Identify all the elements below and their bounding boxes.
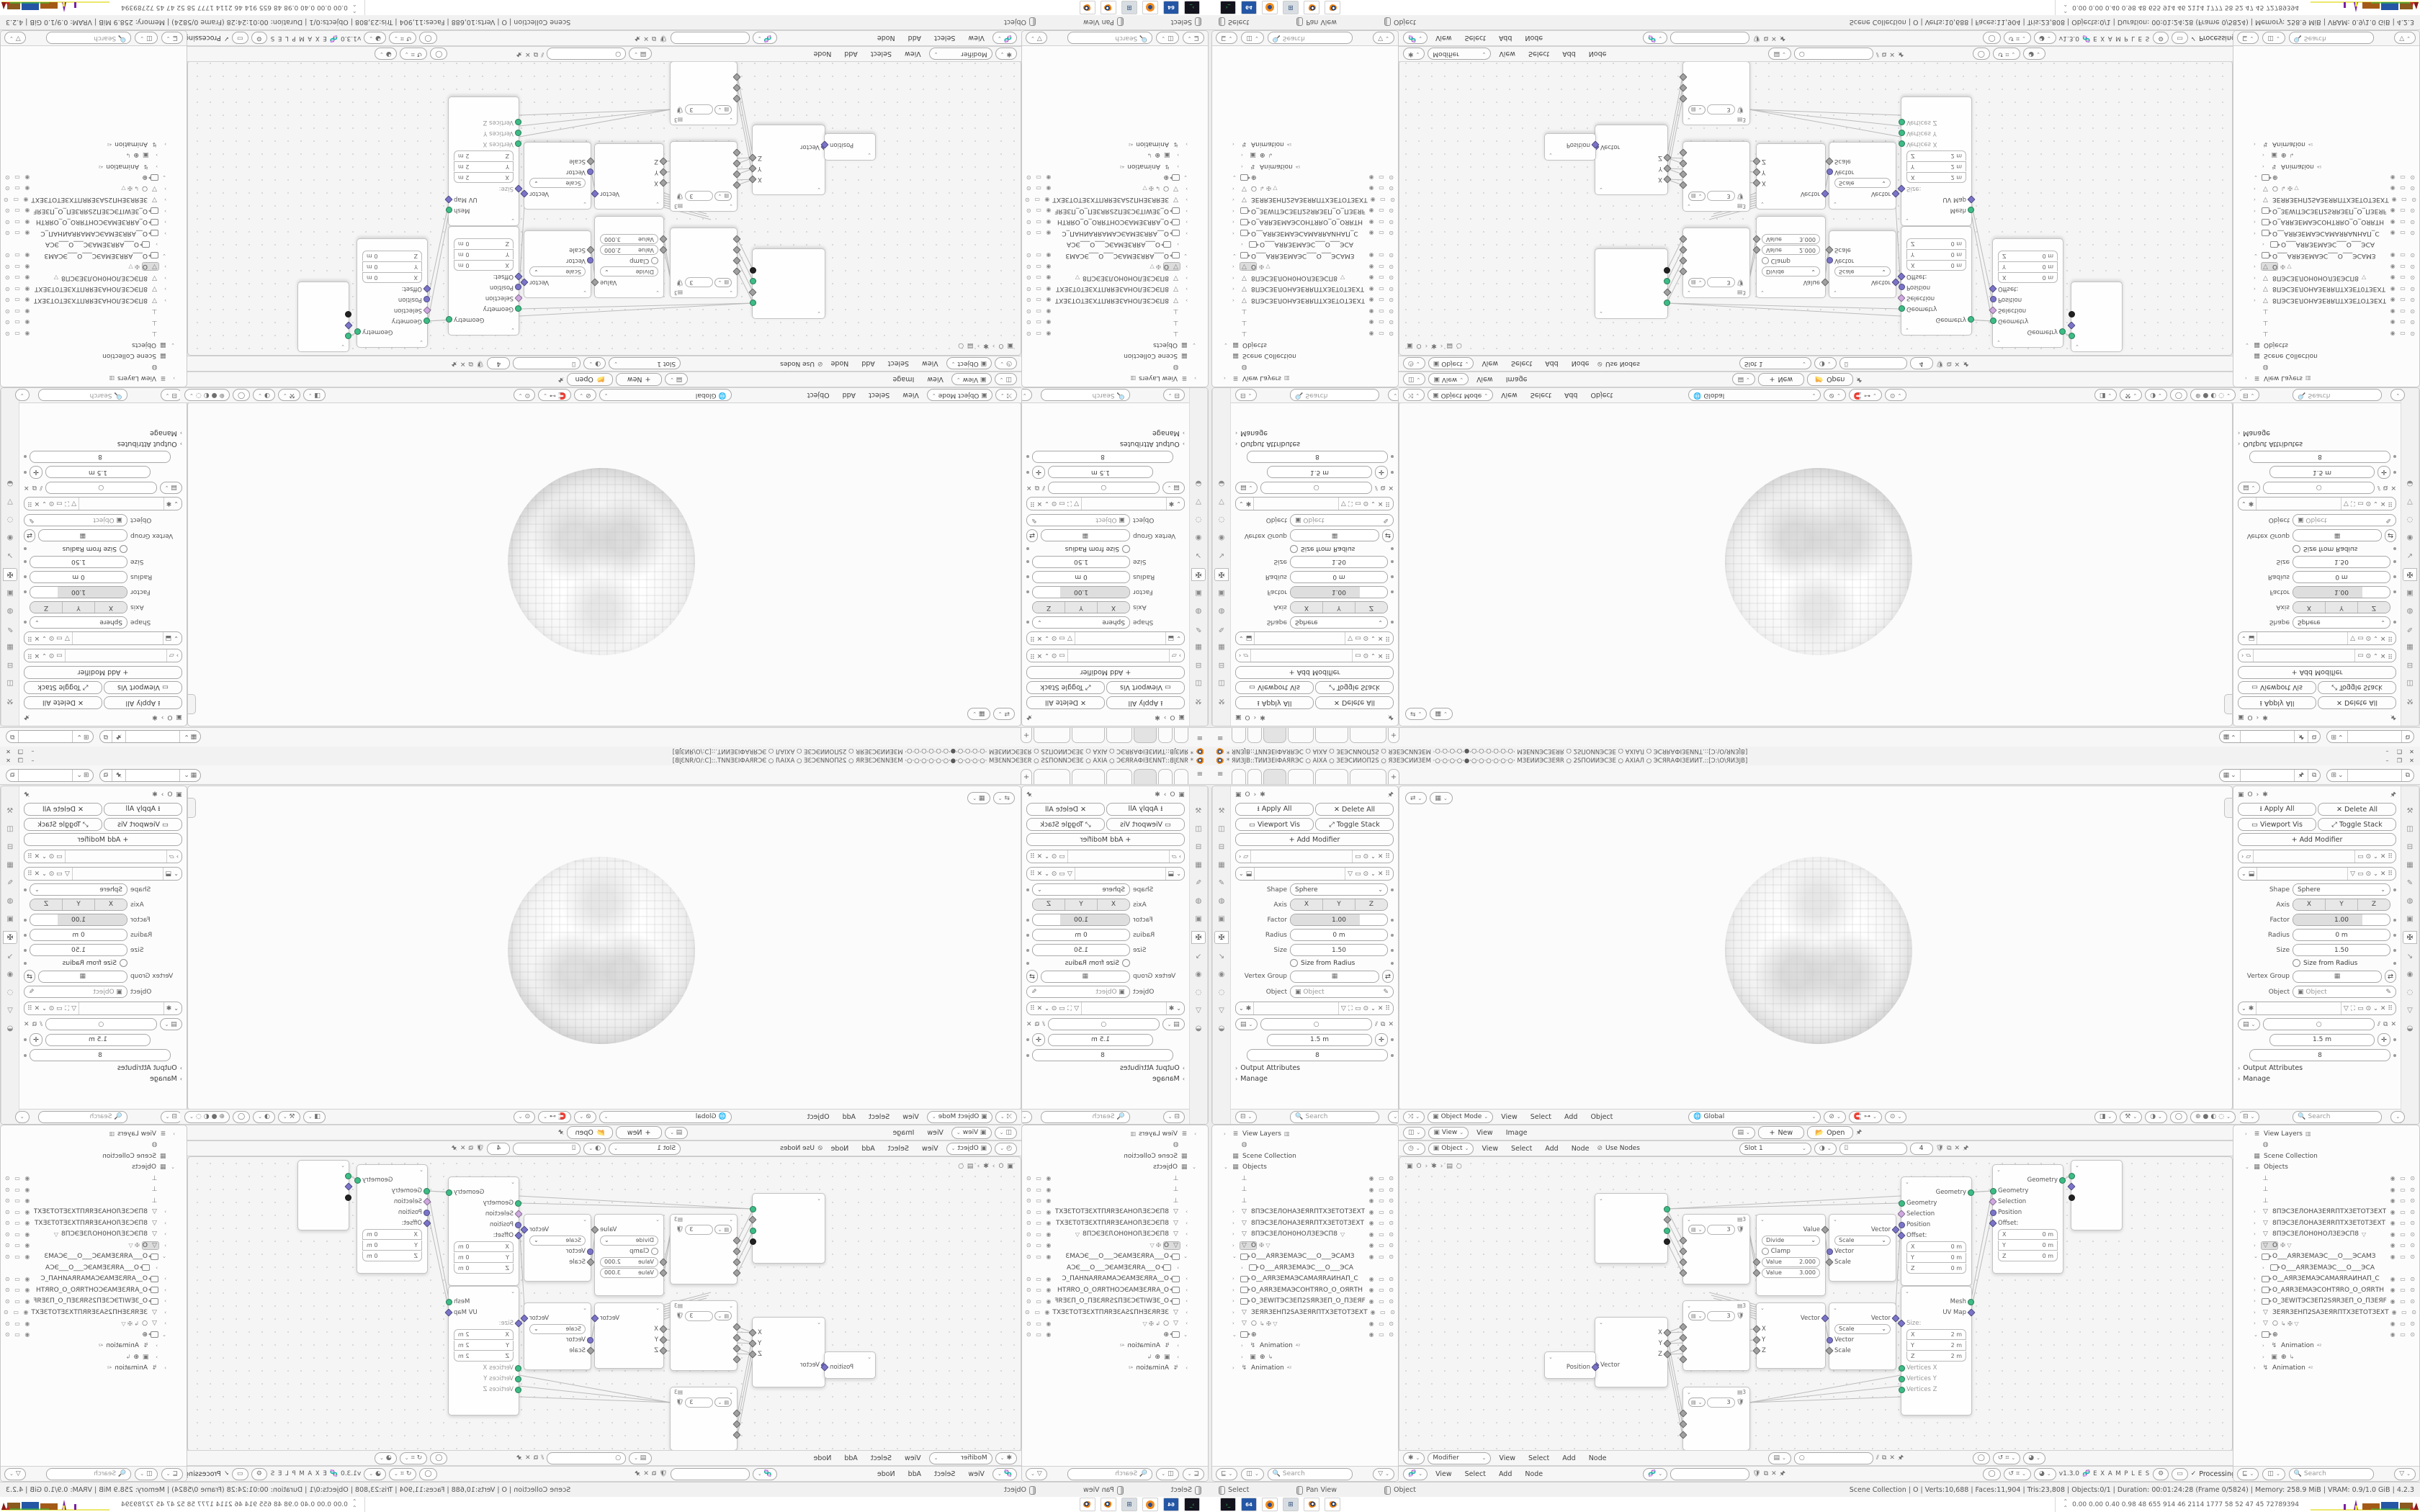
visibility-toggles[interactable]: ◉ ▭ ⊙ (1023, 174, 1051, 181)
modifier-name-field[interactable] (72, 868, 163, 880)
overlays-dropdown[interactable]: ◕⌄ (2023, 48, 2045, 60)
properties-tab-9[interactable]: ◉ (1192, 968, 1205, 980)
properties-tab-3[interactable]: ▦ (1215, 642, 1228, 653)
transform-orientation-selector[interactable]: 🌐 Global⌄ (1688, 1111, 1821, 1123)
pin-icon[interactable]: 🖈 (558, 1127, 564, 1138)
modifier-name-field[interactable] (1075, 632, 1166, 644)
blender-app-icon-2[interactable] (1080, 1, 1095, 14)
properties-tab-3[interactable]: ▦ (4, 859, 17, 870)
visibility-toggles[interactable]: ◉ ▭ ⊙ (2390, 1287, 2418, 1293)
outliner-item[interactable]: ⊥◉ ▭ ⊙ (1215, 317, 1397, 328)
add-workspace-button[interactable]: + (1021, 728, 1032, 743)
factor-slider[interactable]: 1.00 (1032, 586, 1130, 598)
image-menu-view[interactable]: View (1476, 376, 1493, 384)
outliner-item-Objects[interactable]: ⌄▦Objects (1023, 339, 1205, 351)
properties-tab-5[interactable]: ◍ (1215, 895, 1228, 906)
size-from-radius-radio[interactable] (1122, 959, 1130, 967)
node-group-output[interactable]: ⌄ (2071, 1160, 2123, 1230)
shape-dropdown[interactable]: Sphere⌄ (1032, 883, 1130, 896)
visibility-toggles[interactable]: ◉ ▭ ⊙ (2, 174, 30, 181)
copy-icon[interactable]: ⧉ (1381, 485, 1385, 492)
properties-tab-9[interactable]: ◉ (1215, 968, 1228, 980)
output-attributes-section[interactable]: Output Attributes (117, 1064, 177, 1072)
footer-menu-add[interactable]: Add (1562, 50, 1575, 58)
image-browse-icon[interactable]: ▤⌄ (1732, 374, 1754, 386)
view-layer-selector[interactable]: ⊞⌄ ⧉ (6, 769, 94, 782)
snap-magnet-toggle[interactable]: 🧲⊶⌄ (1849, 1111, 1882, 1123)
node-menu-view[interactable]: View (922, 360, 938, 368)
sidebar-toggle-tab[interactable] (188, 798, 196, 818)
node-editor-canvas[interactable]: ▣O ›✱›▤○ ⌄⌄XYZVector⌄Position⌄▤3▤⌄3🛡⌄▤3▤… (187, 60, 1021, 356)
node-id-group-1[interactable]: ⌄▤3▤⌄3🛡 (670, 228, 738, 298)
object-field[interactable]: ▣ Object✎ (1026, 986, 1130, 998)
visibility-toggles[interactable]: ◉ ▭ ⊙ (2390, 1298, 2418, 1305)
image-editor-type-icon[interactable]: ◫⌄ (995, 1127, 1017, 1139)
geometry-nodes-modifier-header[interactable]: ⌄✱▽⛶▭⊙⌄✕⠿ (1026, 497, 1185, 510)
visibility-toggles[interactable]: ◉ ▭ ⊙ (1369, 174, 1397, 181)
properties-tab-4[interactable]: ✎ (4, 877, 17, 888)
object-field[interactable]: ▣ Object✎ (24, 986, 127, 998)
file-manager-app-icon[interactable]: 64 (1163, 1498, 1179, 1511)
modifier-header-expanded[interactable]: ⌄⬓▽▭⊙⌄✕⠿ (24, 631, 182, 645)
outliner-item-O_ЗЕWІТЭСЗЕП[interactable]: ›O_ЗЕWІТЭСЗЕП2ЅЯRЗЕП_O_ПЗЕЯF◉ ▭ ⊙ (2236, 1296, 2418, 1308)
gn-count-field[interactable]: 8 (30, 451, 171, 463)
close-x-icon[interactable]: ✕ (1026, 1021, 1032, 1028)
vertex-group-field[interactable]: ▦ (2293, 971, 2382, 983)
outliner-item-O[interactable]: ›▽O✠ ▽◉ ▭ ⊙ (2, 1240, 184, 1251)
node-position[interactable]: ⌄Position (824, 133, 876, 161)
outliner-item-⊕[interactable]: ⌄⊕◉ ▭ ⊙ (1215, 1329, 1397, 1341)
image-menu-image[interactable]: Image (893, 376, 915, 384)
outliner-item-O_АЯRЗЕМАЭСО[interactable]: ›O_АЯRЗЕМАЭСОНТЯRО_O_ОЯRТН◉ ▭ ⊙ (1215, 217, 1397, 228)
image-menu-view[interactable]: View (927, 1129, 944, 1137)
gn-menu-node[interactable]: Node (1525, 35, 1543, 42)
outliner-item-O[interactable]: ›▽O✠ ▽◉ ▭ ⊙ (2, 261, 184, 273)
modifier-name-field[interactable] (2253, 850, 2355, 863)
outliner-item[interactable]: ⊥◉ ▭ ⊙ (1023, 328, 1205, 340)
visibility-toggles[interactable]: ◉ ▭ ⊙ (1369, 219, 1397, 225)
visibility-toggles[interactable]: ◉ ▭ ⊙ (2390, 174, 2418, 181)
snap-grid-toggle[interactable]: ↺⌗⌄ (389, 1468, 417, 1480)
eyedropper-icon[interactable]: ✎ (1383, 517, 1389, 524)
workspace-tab-6[interactable] (1034, 769, 1070, 784)
graph-icon[interactable]: ⫽ (2378, 485, 2380, 492)
visibility-toggles[interactable]: ◉ ▭ ⊙ (2, 252, 30, 258)
shape-dropdown[interactable]: Sphere⌄ (2293, 883, 2390, 896)
render-slot-selector[interactable]: Slot 1⌄ (609, 358, 681, 370)
modifier-header-expanded[interactable]: ⌄⬓▽▭⊙⌄✕⠿ (1235, 867, 1394, 881)
outliner-item-8ПЭСЗЕЛОНАЗЕ[interactable]: ›▽8ПЭСЗЕЛОНАЗЕЯRПТХЗЕТ0ТЗЕХТ◉ ▭ ⊙ (2, 1218, 184, 1229)
snap-grid-toggle[interactable]: ↺⌗⌄ (2004, 32, 2032, 45)
properties-tab-5[interactable]: ◍ (4, 606, 17, 617)
workspace-tab-1[interactable] (1232, 769, 1246, 784)
snap-magnet-toggle[interactable]: 🧲⊶⌄ (538, 390, 571, 402)
properties-search-field[interactable]: 🔍 Search (1290, 1111, 1379, 1123)
outliner-item-Animation[interactable]: ›↯Animation⁴² (2236, 138, 2418, 150)
outliner-item-Animation[interactable]: ›↯Animation⁴² (1023, 1341, 1205, 1352)
shape-dropdown[interactable]: Sphere⌄ (30, 883, 127, 896)
factor-slider[interactable]: 1.00 (2293, 586, 2390, 598)
factor-slider[interactable]: 1.00 (1290, 914, 1388, 926)
properties-tab-3[interactable]: ▦ (1215, 859, 1228, 870)
visibility-toggles[interactable]: ◉ ▭ ⊙ (1023, 264, 1051, 270)
node-group-browse[interactable]: ▤⌄ (1235, 482, 1258, 494)
outliner-search-field[interactable]: 🔍 Search (46, 32, 131, 45)
visibility-toggles[interactable]: ◉ ▭ ⊙ (1369, 319, 1397, 325)
snap-toggle[interactable]: ⊘⌄ (1824, 390, 1845, 402)
outliner-item-Animation[interactable]: ›↯Animation⁴² (1215, 161, 1397, 172)
outliner-item[interactable]: ⊥◉ ▭ ⊙ (1215, 306, 1397, 318)
properties-tab-6[interactable]: ▣ (4, 588, 17, 599)
properties-tab-0[interactable]: ⚒ (1215, 805, 1228, 816)
geonodes-editor-icon[interactable]: 🧬⌄ (1403, 1468, 1428, 1480)
outliner-item-8ПЭСЗЕЛОНАЗЕ[interactable]: ›▽8ПЭСЗЕЛОНАЗЕЯRПТХЗЕТ0ТЗЕХТ◉ ▭ ⊙ (1215, 1218, 1397, 1229)
visibility-toggles[interactable]: ◉ ▭ ⊙ (1369, 185, 1397, 192)
addon-settings-button[interactable]: ⚙ (2153, 1468, 2169, 1480)
pin-icon[interactable]: 🖈 (558, 374, 564, 385)
properties-tab-1[interactable]: ◫ (2403, 823, 2416, 834)
visibility-toggles[interactable]: ◉ ▭ ⊙ (1023, 308, 1051, 315)
outliner-item-8ПЭСЗЕЛОНАЗЕ[interactable]: ›▽8ПЭСЗЕЛОНАЗЕЯRПТХЗЕТ0ТЗЕХТ◉ ▭ ⊙ (1023, 1218, 1205, 1229)
properties-tab-9[interactable]: ◉ (2403, 532, 2416, 544)
graph-icon[interactable]: ⫽ (40, 1021, 42, 1028)
outliner-item-View Layers[interactable]: ›≣View Layers▥ (2, 1128, 184, 1140)
visibility-toggles[interactable]: ◉ ▭ ⊙ (2390, 185, 2418, 192)
unlink-x-icon[interactable]: ✕ (460, 360, 466, 367)
minimize-button[interactable]: – (29, 757, 37, 764)
outliner-item[interactable]: ◍ (1023, 361, 1205, 373)
visibility-toggles[interactable]: ◉ ▭ ⊙ (1369, 1254, 1397, 1260)
radius-field[interactable]: 0 m (1032, 929, 1130, 941)
properties-search-field[interactable]: 🔍 Search (2293, 1111, 2382, 1123)
outliner-display-mode[interactable]: ◫⌄ (2262, 1468, 2285, 1480)
geometry-nodes-modifier-header[interactable]: ⌄✱▽⛶▭⊙⌄✕⠿ (1235, 497, 1394, 510)
node-vector-scale-1[interactable]: ⌄VectorScale⌄VectorScale (524, 1214, 591, 1282)
modifier-header-collapsed[interactable]: ›▱▭⊙⌄✕⠿ (24, 649, 182, 662)
node-position[interactable]: ⌄Position (1544, 133, 1596, 161)
node-combine-xyz[interactable]: ⌄VectorXYZ (1756, 1302, 1826, 1369)
pin-icon[interactable]: 🖈 (1856, 1127, 1862, 1138)
visibility-toggles[interactable]: ◉ ▭ ⊙ (1023, 1287, 1051, 1293)
properties-tab-12[interactable]: ◒ (1192, 1022, 1205, 1034)
viewport-menu-add[interactable]: Add (1564, 1113, 1577, 1121)
view-layer-selector[interactable]: ⊞⌄ ⧉ (6, 730, 94, 743)
use-nodes-checkbox[interactable]: ⊘ (817, 1145, 823, 1152)
viewport-menu-add[interactable]: Add (1564, 392, 1577, 400)
outliner-item[interactable]: ◍ (2, 1140, 184, 1151)
file-manager-app-icon[interactable]: 64 (1163, 1, 1179, 14)
node-object-info[interactable]: ⌄ (752, 1193, 825, 1264)
pin-icon[interactable]: 🖈 (1898, 48, 1904, 60)
visibility-toggles[interactable]: ◉ ▭ ⊙ (1, 1309, 28, 1315)
outliner-item-O___АЯRЗЕМАЭ[interactable]: ⌄O___АЯRЗЕМАЭС___O___ЭСАМЗ◉ ▭ ⊙ (1215, 250, 1397, 261)
properties-tab-2[interactable]: ⊟ (1192, 841, 1205, 852)
pin-icon[interactable]: 🖈 (2390, 711, 2396, 723)
calculator-app-icon[interactable]: ⊞ (1283, 1, 1299, 14)
outliner-item-○[interactable]: ›▽○↳ ✠ ▽◉ ▭ ⊙ (2, 183, 184, 194)
footer-menu-select[interactable]: Select (871, 50, 892, 58)
pin-icon[interactable]: 🖈 (516, 1452, 522, 1464)
blender-app-icon[interactable] (1304, 1, 1319, 14)
outliner-item-ЗЕЯRЗЕНП2ЅАЗ[interactable]: ›▽ЗЕЯRЗЕНП2ЅАЗЕЯRПТХЗЕТОТЗЕХТ◉ ▭ ⊙ (2236, 1307, 2418, 1318)
view-object-types-button[interactable]: ◨⌄ (303, 390, 326, 402)
outliner-search-field[interactable]: 🔍 Search (1067, 32, 1152, 45)
outliner-item-○[interactable]: ›▽○↳ ✠ ▽◉ ▭ ⊙ (2, 1318, 184, 1330)
factor-slider[interactable]: 1.00 (30, 914, 127, 926)
properties-tab-4[interactable]: ✎ (4, 624, 17, 635)
node-set-position-1[interactable]: ⌄GeometryGeometrySelectionPositionOffset… (448, 226, 519, 336)
visibility-toggles[interactable]: ◉ ▭ ⊙ (1023, 1298, 1051, 1305)
menu-hamburger-icon[interactable]: ≡ (1217, 734, 1223, 742)
modifier-name-field[interactable] (79, 1002, 164, 1014)
outliner-search-field[interactable]: 🔍 Search (1268, 32, 1353, 45)
visibility-toggles[interactable]: ◉ ▭ ⊙ (1369, 207, 1397, 214)
overlay-circle-toggle[interactable]: ◯ (1973, 1452, 1990, 1464)
modifier-name-field[interactable] (1253, 498, 1339, 510)
invert-vertex-group-button[interactable]: ⇄ (1026, 529, 1038, 542)
image-editor-type-icon[interactable]: ◫⌄ (1403, 1127, 1425, 1139)
node-id-group-1[interactable]: ⌄▤3▤⌄3🛡 (1682, 1214, 1750, 1284)
workspace-tab-1[interactable] (1232, 728, 1246, 743)
properties-tab-5[interactable]: ◍ (1192, 895, 1205, 906)
outliner-filter-button[interactable]: ▽⌄ (4, 32, 26, 45)
view-layer-selector[interactable]: ⊞⌄ ⧉ (2326, 730, 2414, 743)
outliner-item-8ПЭСЗЕЛОН0НО[interactable]: ›▽8ПЭСЗЕЛОН0НОЛЗЕЭСП8▽◉ ▭ ⊙ (1023, 1229, 1205, 1241)
viewport-sphere-object[interactable] (508, 468, 695, 655)
properties-tab-8[interactable]: ↘ (4, 550, 17, 562)
outliner-item-O___АЯRЗЕМАЭ[interactable]: ›O___АЯRЗЕМАЭС___O___ЭСА (2236, 239, 2418, 251)
properties-tab-3[interactable]: ▦ (2403, 859, 2416, 870)
outliner-item-O[interactable]: ›▽O✠ ▽◉ ▭ ⊙ (1023, 261, 1205, 273)
properties-tab-1[interactable]: ◫ (2403, 678, 2416, 689)
viewport-menu-add[interactable]: Add (843, 1113, 856, 1121)
node-vector-scale-2[interactable]: ⌄VectorScale⌄VectorScale (1829, 1302, 1896, 1370)
radius-field[interactable]: 0 m (1290, 571, 1388, 583)
properties-tab-2[interactable]: ⊟ (4, 841, 17, 852)
visibility-toggles[interactable]: ◉ ▭ ⊙ (1369, 1320, 1397, 1327)
vertex-group-field[interactable]: ▦ (38, 530, 127, 542)
visibility-toggles[interactable]: ◉ ▭ ⊙ (1023, 274, 1051, 281)
visibility-toggles[interactable]: ◉ ▭ ⊙ (2, 286, 30, 292)
image-name-field[interactable]: ⌼ (513, 1143, 581, 1155)
viewport-editor-type-icon[interactable]: ⤨⌄ (995, 1111, 1017, 1123)
add-modifier-button[interactable]: + Add Modifier (1026, 666, 1185, 679)
modifier-name-field[interactable] (1254, 632, 1345, 644)
visibility-toggles[interactable]: ◉ ▭ ⊙ (2, 330, 30, 337)
visibility-toggles[interactable]: ◉ ▭ ⊙ (2, 1254, 30, 1260)
visibility-toggles[interactable]: ◉ ▭ ⊙ (1023, 207, 1051, 214)
gn-menu-add[interactable]: Add (908, 35, 921, 42)
factor-slider[interactable]: 1.00 (1290, 586, 1388, 598)
outliner-item-Animation[interactable]: ›↯Animation⁴² (1215, 1363, 1397, 1374)
object-field[interactable]: ▣ Object✎ (2293, 514, 2396, 526)
node-menu-view[interactable]: View (1482, 360, 1498, 368)
outliner-item-8ПЭСЗЕЛОН0НО[interactable]: ›▽8ПЭСЗЕЛОН0НОЛЗЕЭСП8▽◉ ▭ ⊙ (2236, 272, 2418, 284)
outliner-item[interactable]: ⊥◉ ▭ ⊙ (2, 306, 184, 318)
node-position[interactable]: ⌄Position (1544, 1351, 1596, 1379)
image-editor-type-icon[interactable]: ◫⌄ (1403, 374, 1425, 386)
viewport-vis-button[interactable]: ▭ Viewport Vis (1106, 818, 1185, 831)
footer-menu-select[interactable]: Select (871, 1454, 892, 1462)
viewport-vis-button[interactable]: ▭ Viewport Vis (2238, 681, 2316, 694)
node-cube[interactable]: ⌄MeshUV MapSize:X2 mY2 mZ2 mVertices XVe… (1901, 1286, 1972, 1416)
invert-vertex-group-button[interactable]: ⇄ (24, 529, 35, 542)
outliner-filter-button[interactable]: ▽⌄ (4, 1468, 26, 1480)
copy-icon[interactable]: ⧉ (32, 485, 37, 492)
image-browse-icon[interactable]: ▤⌄ (1732, 1127, 1754, 1139)
visibility-toggles[interactable]: ◉ ▭ ⊙ (1369, 330, 1397, 337)
workspace-tab-2[interactable] (1247, 769, 1262, 784)
sidebar-toggle-tab[interactable] (2224, 798, 2232, 818)
outliner-editor-type-icon[interactable]: ⊑⌄ (1183, 1468, 1204, 1480)
properties-tab-2[interactable]: ⊟ (2403, 660, 2416, 671)
visibility-toggles[interactable]: ◉ ▭ ⊙ (2, 308, 30, 315)
outliner-item-O_АЯRЗЕМАЭСО[interactable]: ›O_АЯRЗЕМАЭСОНТЯRО_O_ОЯRТН◉ ▭ ⊙ (2, 1284, 184, 1296)
close-button[interactable]: ✕ (2408, 757, 2416, 764)
outliner-item[interactable]: ⊥◉ ▭ ⊙ (2, 1184, 184, 1196)
xray-toggle[interactable]: ◯ (233, 1111, 250, 1123)
properties-tab-3[interactable]: ▦ (4, 642, 17, 653)
apply-all-button[interactable]: ⭳ Apply All (1235, 696, 1314, 709)
visibility-toggles[interactable]: ◉ ▭ ⊙ (1023, 1242, 1051, 1248)
pin-icon[interactable]: 🖈 (24, 711, 30, 723)
node-set-position-2[interactable]: ⌄GeometryGeometrySelectionPositionOffset… (1992, 238, 2063, 348)
visibility-toggles[interactable]: ◉ ▭ ⊙ (2, 185, 30, 192)
gn-count-field[interactable]: 8 (2249, 451, 2390, 463)
vertex-group-field[interactable]: ▦ (1041, 971, 1130, 983)
outliner-item[interactable]: ◍ (2, 361, 184, 373)
outliner-item[interactable]: ⊥◉ ▭ ⊙ (2, 317, 184, 328)
snap-grid-toggle[interactable]: ↺⌗⌄ (1993, 1452, 2021, 1464)
graph-icon[interactable]: ⫽ (1042, 1021, 1045, 1028)
outliner-item-Objects[interactable]: ⌄▦Objects (2236, 339, 2418, 351)
outliner-search-field[interactable]: 🔍 Search (2289, 1468, 2374, 1480)
node-group-name-field[interactable]: ○ (1260, 482, 1372, 494)
size-from-radius-radio[interactable] (2293, 545, 2300, 553)
visibility-toggles[interactable]: ◉ ▭ ⊙ (2390, 1242, 2418, 1248)
workspace-tab-1[interactable] (1174, 728, 1188, 743)
copy-icon[interactable]: ⧉ (652, 35, 656, 42)
add-workspace-button[interactable]: + (1388, 728, 1399, 743)
properties-tab-1[interactable]: ◫ (4, 678, 17, 689)
image-menu-view[interactable]: View (927, 376, 944, 384)
properties-search-field[interactable]: 🔍 Search (1041, 390, 1130, 402)
workspace-tab-3[interactable] (1134, 728, 1157, 743)
workspace-tab-4[interactable] (1106, 728, 1132, 743)
viewport-editor-type-icon[interactable]: ⤨⌄ (1403, 390, 1425, 402)
outliner-item-O_ЗЕWІТЭСЗЕП[interactable]: ›O_ЗЕWІТЭСЗЕП2ЅЯRЗЕП_O_ПЗЕЯF◉ ▭ ⊙ (2, 1296, 184, 1308)
visibility-toggles[interactable]: ◉ ▭ ⊙ (1, 197, 28, 203)
size-from-radius-radio[interactable] (2293, 959, 2300, 967)
close-x-icon[interactable]: ✕ (1388, 485, 1394, 492)
visibility-toggles[interactable]: ◉ ▭ ⊙ (1369, 274, 1397, 281)
gn-tree-name-field[interactable] (671, 1468, 750, 1480)
addon-settings-button[interactable]: ⚙ (251, 32, 267, 45)
outliner-editor-type-icon[interactable]: ⊑⌄ (1183, 32, 1204, 45)
outliner-item-O_АЯRЗЕМАЭСО[interactable]: ›O_АЯRЗЕМАЭСОНТЯRО_O_ОЯRТН◉ ▭ ⊙ (2236, 1284, 2418, 1296)
modifier-context-selector[interactable]: Modifier⌄ (929, 1452, 992, 1464)
addon-settings-button[interactable]: ⚙ (2153, 32, 2169, 45)
size-field[interactable]: 1.50 (1032, 944, 1130, 956)
gn-count-field[interactable]: 8 (2249, 1049, 2390, 1061)
outliner-item-⊕[interactable]: ⌄⊕◉ ▭ ⊙ (1215, 172, 1397, 184)
modifier-header-expanded[interactable]: ⌄⬓▽▭⊙⌄✕⠿ (2238, 631, 2396, 645)
copy-icon[interactable]: ⧉ (1947, 360, 1951, 367)
visibility-toggles[interactable]: ◉ ▭ ⊙ (2, 264, 30, 270)
node-context-selector[interactable]: ▣ Object⌄ (946, 358, 992, 370)
node-editor-type-icon[interactable]: ◷⌄ (995, 358, 1017, 370)
outliner-display-mode[interactable]: ◫⌄ (1241, 1468, 1263, 1480)
outliner-item-○[interactable]: ›▽○↳ ✠ ▽◉ ▭ ⊙ (1215, 1318, 1397, 1330)
outliner-item-○[interactable]: ›▽○↳ ✠ ▽◉ ▭ ⊙ (2236, 1318, 2418, 1330)
shape-dropdown[interactable]: Sphere⌄ (30, 616, 127, 629)
visibility-toggles[interactable]: ◉ ▭ ⊙ (2, 1298, 30, 1305)
overlay-circle-toggle[interactable]: ◯ (419, 32, 436, 45)
visibility-toggles[interactable]: ◉ ▭ ⊙ (2390, 1209, 2418, 1215)
viewport-3d[interactable]: ⇄⌄ ▦⌄ (1399, 402, 2233, 726)
outliner-item-Objects[interactable]: ⌄▦Objects (2236, 1162, 2418, 1174)
node-id-group-1[interactable]: ⌄▤3▤⌄3🛡 (670, 1214, 738, 1284)
gn-size-field[interactable]: 1.5 m (1267, 1034, 1372, 1046)
sidebar-toggle-tab[interactable] (2224, 694, 2232, 714)
properties-tab-3[interactable]: ▦ (1192, 642, 1205, 653)
footer-menu-node[interactable]: Node (814, 50, 832, 58)
image-view-mode-selector[interactable]: ▣ View⌄ (1428, 1127, 1469, 1139)
visibility-toggles[interactable]: ◉ ▭ ⊙ (2, 207, 30, 214)
apply-all-button[interactable]: ⭳ Apply All (2238, 803, 2316, 816)
workspace-tab-4[interactable] (1288, 728, 1314, 743)
node-cube[interactable]: ⌄MeshUV MapSize:X2 mY2 mZ2 mVertices XVe… (1901, 96, 1972, 226)
outliner-item-O[interactable]: ›▽O✠ ▽◉ ▭ ⊙ (2236, 261, 2418, 273)
xray-toggle[interactable]: ◯ (2170, 1111, 2187, 1123)
manage-section[interactable]: Manage (2243, 1075, 2270, 1083)
tree-name-field[interactable]: ○ (547, 1452, 626, 1464)
node-group-name-field[interactable]: ○ (2263, 1018, 2375, 1030)
outliner-item-O___АЯRЗЕМАЭ[interactable]: ⌄O___АЯRЗЕМАЭС___O___ЭСАМЗ◉ ▭ ⊙ (1023, 1251, 1205, 1263)
viewport-menu-object[interactable]: Object (807, 1113, 830, 1121)
shading-mode-switch[interactable]: ⊕●◐◌⌄ (184, 1111, 230, 1123)
image-datablock-icon[interactable]: ◑⌄ (583, 1143, 606, 1155)
outliner-item-○[interactable]: ›▽○↳ ✠ ▽◉ ▭ ⊙ (2236, 183, 2418, 194)
outliner-item[interactable]: ⊥◉ ▭ ⊙ (2236, 1173, 2418, 1184)
mode-selector[interactable]: ▣ Object Mode⌄ (927, 1111, 992, 1123)
properties-editor-type-icon[interactable]: ⊟⌄ (1235, 1111, 1257, 1123)
viewport-vis-button[interactable]: ▭ Viewport Vis (1235, 818, 1314, 831)
properties-options-button[interactable]: ⌄ (2390, 1111, 2405, 1123)
outliner-item-8ПЭСЗЕЛОНАЗЕ[interactable]: ›▽8ПЭСЗЕЛОНАЗЕЯRПТХЗЕТОТЗЕХТ◉ ▭ ⊙ (2, 294, 184, 306)
properties-tab-6[interactable]: ▣ (1192, 913, 1205, 924)
visibility-toggles[interactable]: ◉ ▭ ⊙ (2390, 1331, 2418, 1338)
modifier-context-selector[interactable]: Modifier⌄ (1428, 1452, 1491, 1464)
factor-slider[interactable]: 1.00 (30, 586, 127, 598)
editor-type-button[interactable]: ⇄⌄ (993, 792, 1015, 804)
pin-icon[interactable]: 🖈 (1026, 789, 1032, 801)
outliner-item-O_ЗЕWІТЭСЗЕП[interactable]: ›O_ЗЕWІТЭСЗЕП2ЅЯRЗЕП_O_ПЗЕЯF◉ ▭ ⊙ (1023, 1296, 1205, 1308)
graph-icon[interactable]: ⫽ (541, 1454, 544, 1462)
blender-app-icon-2[interactable] (1325, 1, 1340, 14)
viewport-menu-select[interactable]: Select (1531, 392, 1551, 400)
pin-icon[interactable]: 🖈 (1963, 1143, 1968, 1154)
visibility-toggles[interactable]: ◉ ▭ ⊙ (1023, 1276, 1051, 1282)
outliner-item-8ПЭСЗЕЛОНАЗЕ[interactable]: ›▽8ПЭСЗЕЛОНАЗЕЯRПТХЗЕТОТЗЕХТ◉ ▭ ⊙ (1215, 1207, 1397, 1218)
gn-menu-node[interactable]: Node (1525, 1470, 1543, 1478)
modifier-header-collapsed[interactable]: ›▱▭⊙⌄✕⠿ (1235, 649, 1394, 662)
image-menu-view[interactable]: View (1476, 1129, 1493, 1137)
gn-menu-node[interactable]: Node (877, 35, 895, 42)
node-vector-scale-2[interactable]: ⌄VectorScale⌄VectorScale (1829, 142, 1896, 210)
image-new-button[interactable]: + New (616, 1126, 662, 1139)
shield-icon[interactable]: 🛡 (659, 1470, 667, 1477)
